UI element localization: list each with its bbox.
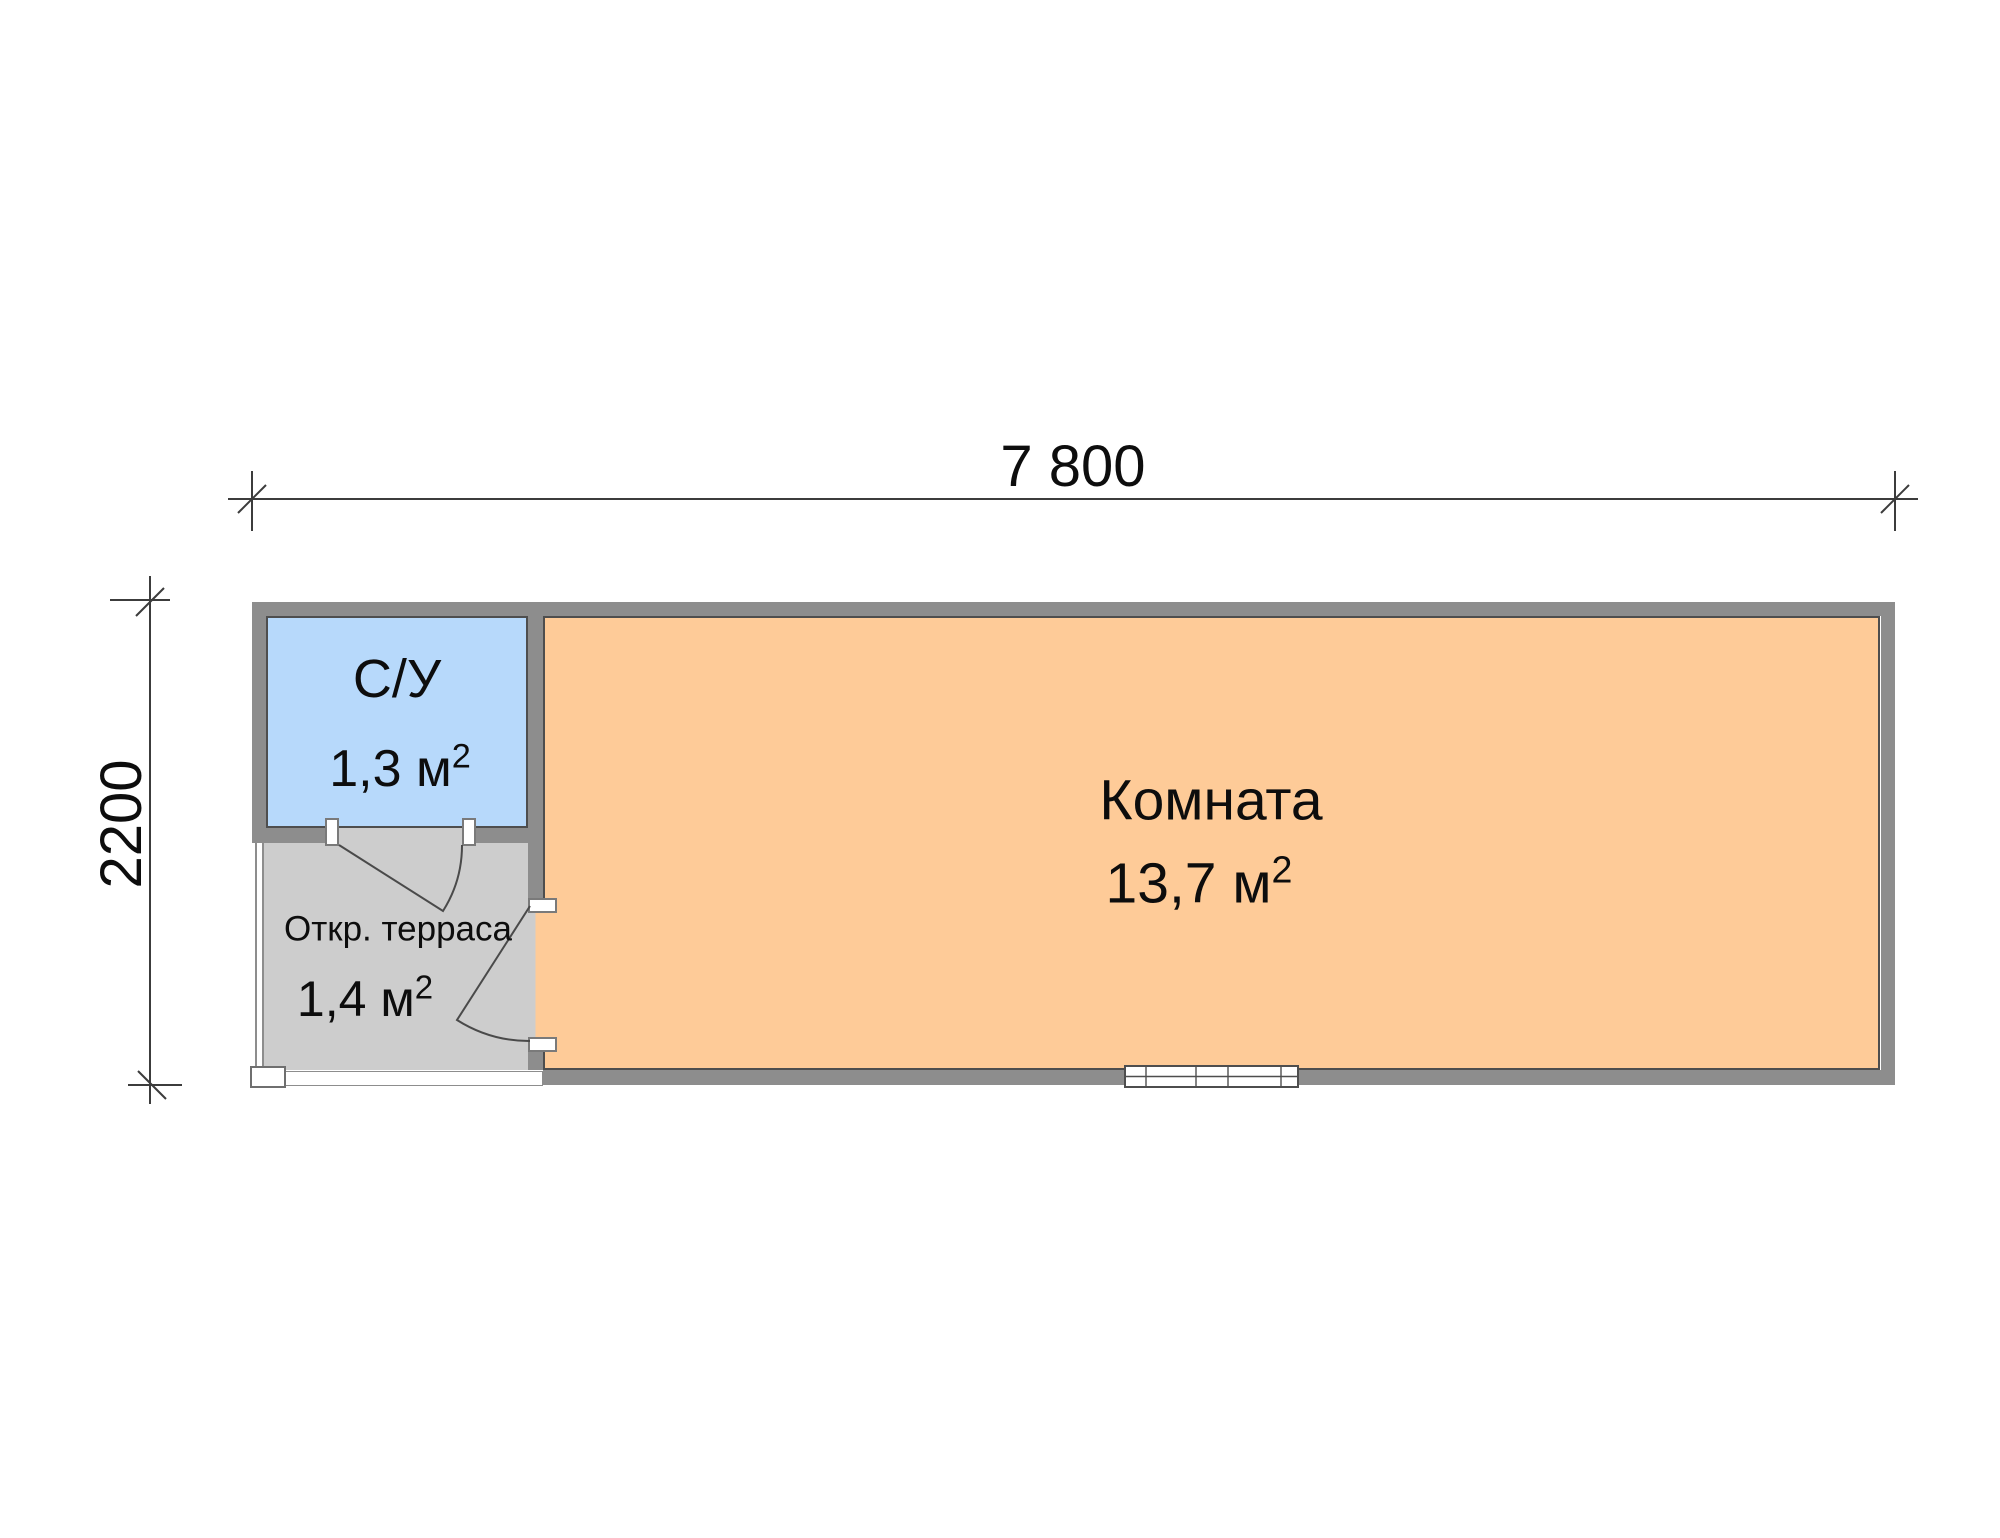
door-jamb-bathroom-left <box>325 818 339 846</box>
terrace-area-value: 1,4 м <box>297 971 415 1027</box>
dimension-width-label: 7 800 <box>1000 438 1145 496</box>
bathroom-area-value: 1,3 м <box>329 740 451 798</box>
door-jamb-terrace-top <box>528 898 557 913</box>
terrace-open-edge-bottom <box>252 1071 543 1086</box>
wall-right <box>1881 602 1895 1085</box>
main-room-name-label: Комната <box>1099 773 1322 830</box>
floor-plan: 7 800 2200 С/У 1,3 м2 Откр. терраса 1,4 … <box>0 0 2000 1538</box>
bathroom-name-label: С/У <box>353 652 441 706</box>
bathroom-area-exponent: 2 <box>452 738 471 776</box>
main-room-area-value: 13,7 м <box>1106 852 1272 916</box>
room-terrace <box>262 843 528 1070</box>
bathroom-area-label: 1,3 м2 <box>329 743 471 795</box>
terrace-area-label: 1,4 м2 <box>297 974 433 1024</box>
wall-bottom <box>543 1070 1895 1085</box>
door-jamb-bathroom-right <box>462 818 476 846</box>
terrace-corner-post <box>250 1066 286 1088</box>
terrace-open-edge-left <box>255 843 264 1072</box>
wall-left-upper <box>252 602 266 843</box>
terrace-name-label: Откр. терраса <box>284 912 512 947</box>
door-opening-bathroom <box>339 828 462 843</box>
door-jamb-terrace-bottom <box>528 1037 557 1052</box>
door-opening-terrace-room <box>528 912 545 1038</box>
main-room-area-exponent: 2 <box>1272 849 1293 891</box>
wall-top <box>252 602 1895 616</box>
main-room-area-label: 13,7 м2 <box>1106 856 1293 913</box>
dimension-height-label: 2200 <box>93 759 151 888</box>
room-main <box>543 616 1880 1070</box>
terrace-area-exponent: 2 <box>415 968 433 1005</box>
